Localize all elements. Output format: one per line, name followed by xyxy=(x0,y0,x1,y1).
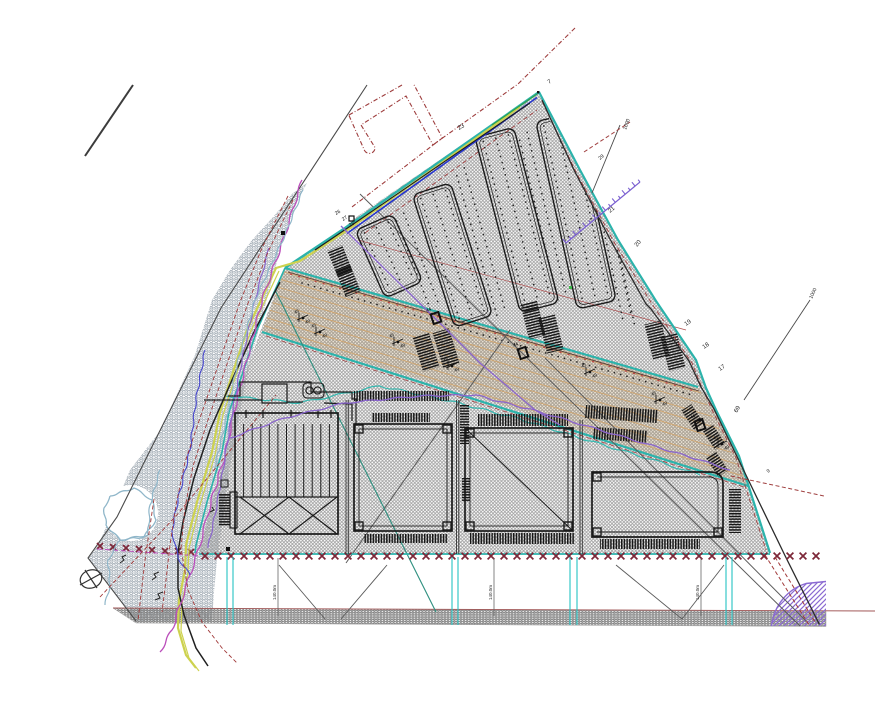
svg-text:140.0m: 140.0m xyxy=(488,585,493,600)
svg-text:140.0m: 140.0m xyxy=(272,585,277,600)
svg-text:140.0m: 140.0m xyxy=(695,585,700,600)
